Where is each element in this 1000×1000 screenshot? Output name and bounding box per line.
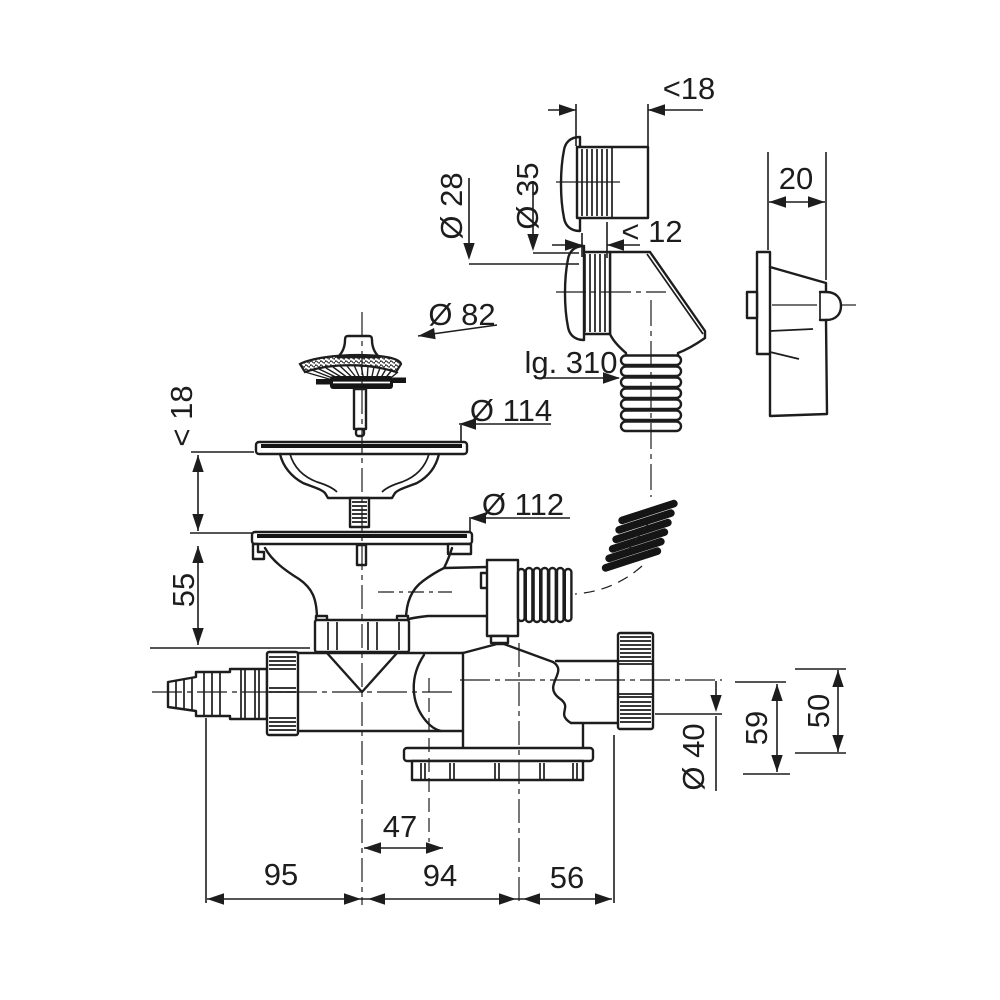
dim-outlet-diameter: Ø 40 <box>655 681 722 791</box>
dim-label-span-left: 95 <box>264 857 298 892</box>
part-strainer-plug <box>300 336 406 436</box>
dim-label-hose-diameter: Ø 28 <box>434 172 469 239</box>
dim-label-span-right: 56 <box>550 860 584 895</box>
dim-lower-flange: Ø 112 <box>469 487 570 532</box>
technical-drawing-page: <18 Ø 28 Ø 35 < 12 20 <box>0 0 1000 1000</box>
dim-label-span-middle: 94 <box>423 858 457 893</box>
part-outlet-nut <box>618 633 653 729</box>
dim-label-clamp-thickness: < 18 <box>164 385 199 446</box>
inlet-spigot <box>168 669 267 719</box>
dim-bracket-width: 20 <box>768 152 826 280</box>
part-funnel <box>265 545 488 620</box>
dim-label-outlet-height: 59 <box>739 711 774 745</box>
dim-hose-diameter: Ø 28 <box>434 172 579 264</box>
dim-hose-length: lg. 310 <box>524 345 620 384</box>
dim-label-elbow-thread: < 12 <box>621 214 682 249</box>
dim-top-sleeve: <18 <box>548 71 715 146</box>
dim-label-inlet-height: 55 <box>166 573 201 607</box>
dim-label-nut-diameter: Ø 35 <box>510 162 545 229</box>
part-siphon-body <box>168 644 618 748</box>
part-bottom-cup <box>404 748 593 780</box>
dim-clamp-thickness: < 18 <box>164 385 254 533</box>
dim-label-outlet-diameter: Ø 40 <box>676 723 711 790</box>
part-overflow-inlet <box>481 560 571 643</box>
technical-drawing-canvas: <18 Ø 28 Ø 35 < 12 20 <box>0 0 1000 1000</box>
part-overflow-elbow <box>565 246 705 356</box>
dim-inlet-offset: 47 <box>364 809 443 854</box>
dim-label-upper-flange: Ø 114 <box>470 393 552 428</box>
part-corrugated-hose <box>601 356 681 573</box>
dim-label-lower-flange: Ø 112 <box>482 487 564 522</box>
dim-label-outlet-drop: 50 <box>801 694 836 728</box>
dim-label-hose-length: lg. 310 <box>524 345 617 380</box>
dim-inlet-height: 55 <box>150 546 310 648</box>
dim-outlet-height: 59 <box>735 682 790 774</box>
part-wall-bracket <box>747 252 856 416</box>
dim-outlet-drop: 50 <box>795 669 846 753</box>
dim-label-strainer: Ø 82 <box>428 297 495 332</box>
dim-label-bracket-width: 20 <box>779 161 813 196</box>
dim-label-top-sleeve: <18 <box>663 71 716 106</box>
dim-upper-flange: Ø 114 <box>459 393 552 441</box>
dim-label-inlet-offset: 47 <box>383 809 417 844</box>
dim-strainer: Ø 82 <box>417 297 497 342</box>
